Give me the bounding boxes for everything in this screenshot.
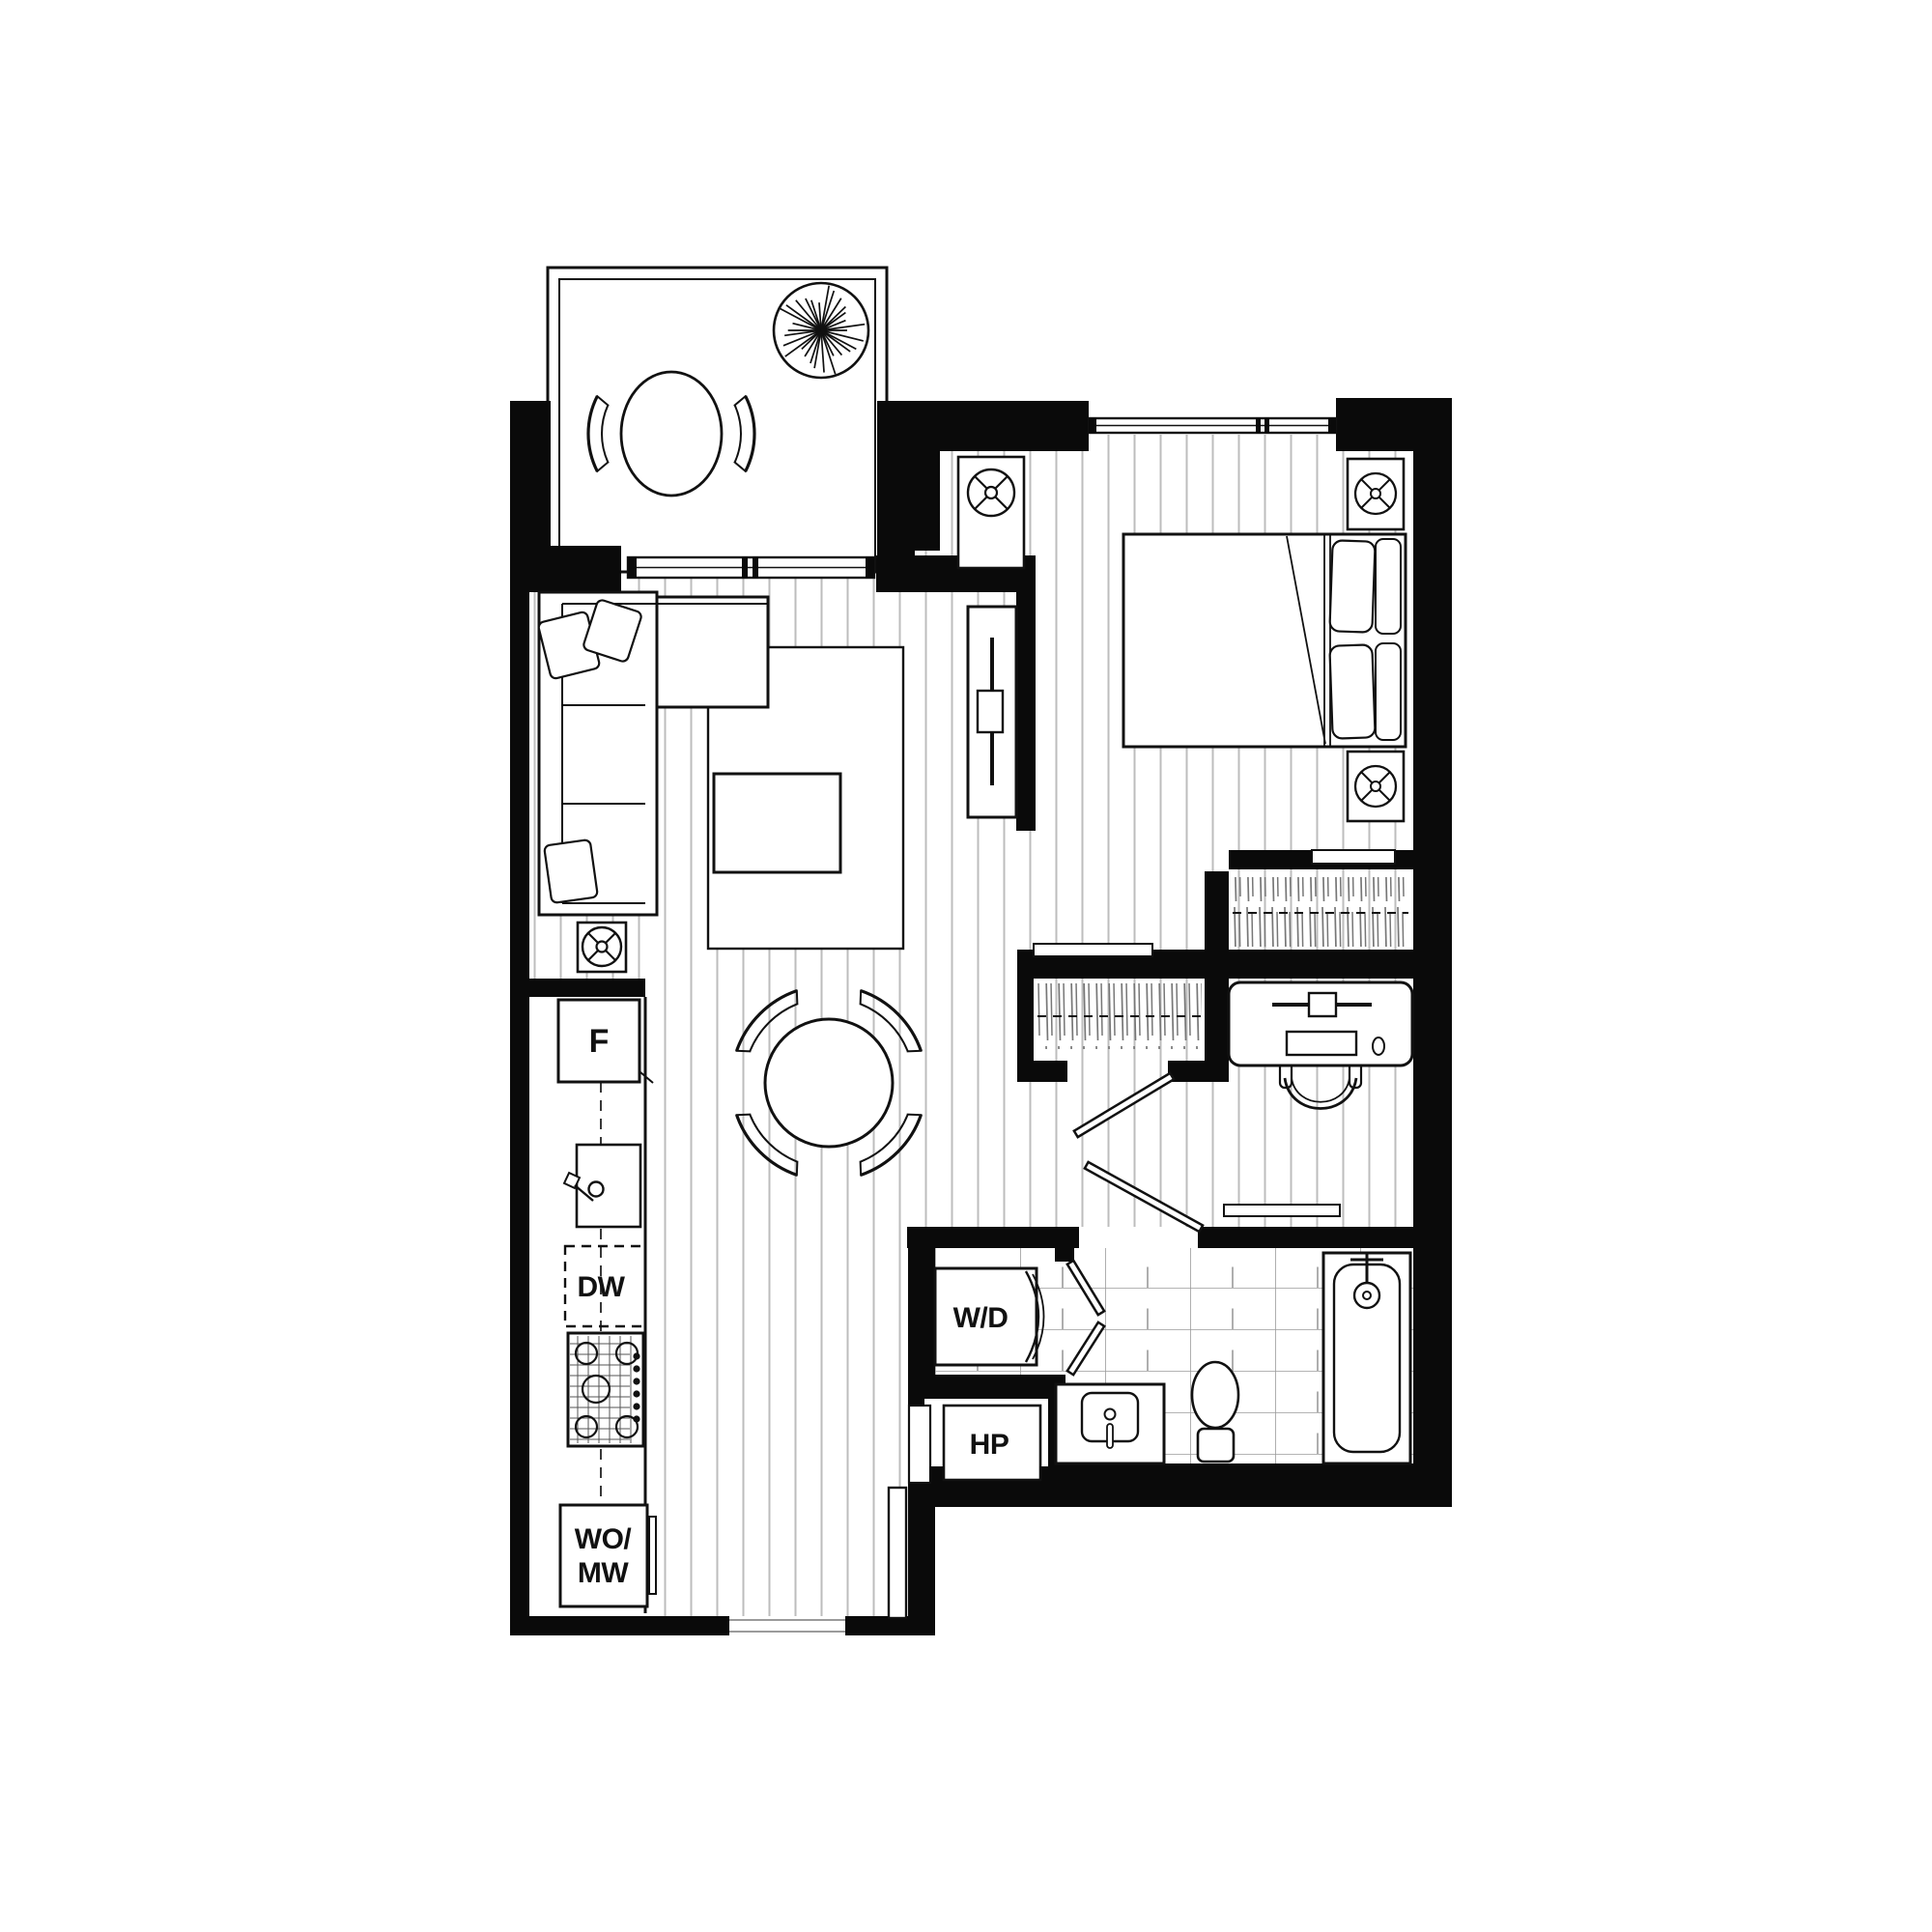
nightstand-bottom [1348, 752, 1404, 821]
hall-shelf [1034, 944, 1152, 956]
den-shelf [1224, 1205, 1340, 1216]
hp-closet-door [909, 1406, 930, 1483]
washer-dryer-label: W/D [953, 1302, 1009, 1334]
walkin-closet [1233, 877, 1408, 947]
dining-table [765, 1019, 893, 1147]
wall-balcony-left [510, 401, 551, 551]
kitchen [558, 997, 656, 1613]
pillow [1329, 540, 1375, 632]
potted-plant-icon [774, 283, 868, 378]
bedroom-shelf [1312, 850, 1395, 864]
wall-oven-label: WO/ [575, 1523, 633, 1555]
hanging-clothes [1233, 877, 1408, 947]
cooktop [568, 1333, 643, 1446]
balcony [548, 268, 887, 572]
wall-left-exterior [510, 592, 529, 1635]
entry-door-leaf [889, 1488, 906, 1618]
bed [1123, 534, 1406, 747]
coffee-table [714, 774, 840, 872]
floor-lamp [578, 923, 626, 972]
vanity-sink [1056, 1384, 1164, 1463]
wall-living-topleft [510, 546, 621, 592]
wall-bath-north-right [1198, 1227, 1413, 1248]
desk [1229, 982, 1412, 1065]
wall-tv [1016, 592, 1036, 831]
toilet [1192, 1362, 1238, 1462]
wall-bath-door-jamb [1055, 1248, 1074, 1262]
bathtub [1323, 1253, 1410, 1463]
dishwasher-label: DW [578, 1271, 626, 1303]
bedroom-window [1089, 418, 1336, 433]
balcony-table [621, 372, 722, 496]
microwave-label: MW [578, 1557, 629, 1589]
pillow [1376, 643, 1401, 740]
fridge-label: F [589, 1023, 610, 1060]
living-balcony-window [628, 557, 874, 578]
wall-oven-microwave [560, 1505, 656, 1606]
heat-pump-label: HP [970, 1429, 1009, 1461]
sofa-chaise [657, 597, 768, 707]
wall-bath-north-left [907, 1227, 1079, 1248]
pillow [1376, 539, 1401, 634]
hall-closet [1037, 983, 1202, 1049]
keyboard [1287, 1032, 1356, 1055]
wall-wd-hp-divider [908, 1375, 1065, 1399]
kitchen-sink [564, 1145, 640, 1227]
pillow [1329, 644, 1375, 738]
entry-threshold [729, 1620, 845, 1632]
tv-console [968, 607, 1016, 817]
sofa-pillow [544, 839, 598, 903]
wall-closet-stub-right [1168, 1061, 1229, 1082]
dresser-with-lamp [958, 457, 1024, 568]
wall-bottom-left [510, 1616, 729, 1635]
wall-closet-stub-left [1017, 1061, 1067, 1082]
nightstand-top [1348, 459, 1404, 529]
floor-plan-page: F DW WO/ MW W/D HP [0, 0, 1932, 1932]
hallway-floor [908, 980, 1016, 1227]
wall-nook-left [877, 451, 915, 555]
floor-plan-svg: F DW WO/ MW W/D HP [0, 0, 1932, 1932]
wall-top-middle [877, 401, 1089, 451]
mouse [1373, 1037, 1384, 1055]
wall-right-exterior [1413, 398, 1452, 1507]
wall-kitchen-top [510, 979, 645, 997]
